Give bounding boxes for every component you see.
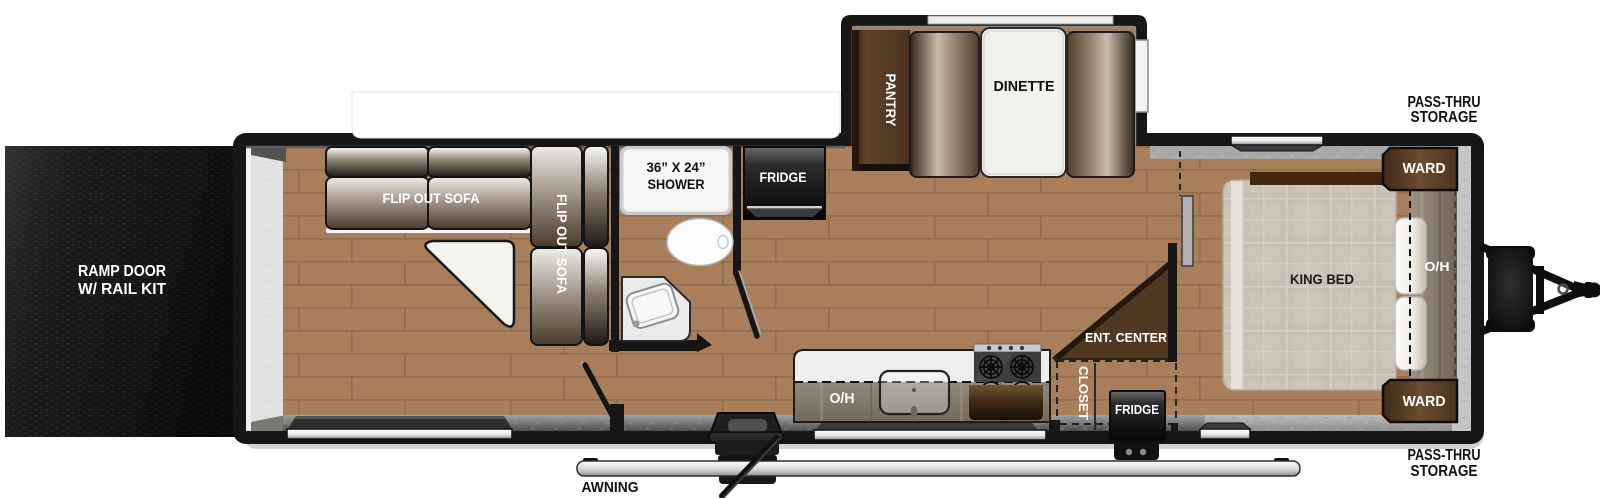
svg-text:FLIP OUT SOFA: FLIP OUT SOFA xyxy=(554,194,570,294)
svg-text:FRIDGE: FRIDGE xyxy=(1115,403,1159,417)
svg-text:WARD: WARD xyxy=(1403,161,1446,177)
svg-text:DINETTE: DINETTE xyxy=(994,78,1055,95)
svg-text:STORAGE: STORAGE xyxy=(1411,109,1478,126)
svg-text:RAMP DOOR: RAMP DOOR xyxy=(78,263,166,280)
svg-text:ENT. CENTER: ENT. CENTER xyxy=(1085,330,1168,345)
svg-text:O/H: O/H xyxy=(1425,259,1450,274)
svg-text:CLOSET: CLOSET xyxy=(1076,366,1091,420)
svg-text:STORAGE: STORAGE xyxy=(1411,463,1478,480)
svg-text:PASS-THRU: PASS-THRU xyxy=(1408,447,1481,464)
svg-text:SHOWER: SHOWER xyxy=(648,177,705,192)
svg-text:O/H: O/H xyxy=(830,391,855,407)
svg-text:FRIDGE: FRIDGE xyxy=(760,170,807,185)
svg-text:36” X 24”: 36” X 24” xyxy=(647,160,706,175)
svg-text:AWNING: AWNING xyxy=(582,479,639,496)
svg-text:KING BED: KING BED xyxy=(1290,271,1354,287)
svg-text:FLIP OUT SOFA: FLIP OUT SOFA xyxy=(383,190,480,206)
svg-text:PANTRY: PANTRY xyxy=(883,74,898,127)
svg-text:W/ RAIL KIT: W/ RAIL KIT xyxy=(78,281,166,298)
svg-text:WARD: WARD xyxy=(1403,394,1446,410)
